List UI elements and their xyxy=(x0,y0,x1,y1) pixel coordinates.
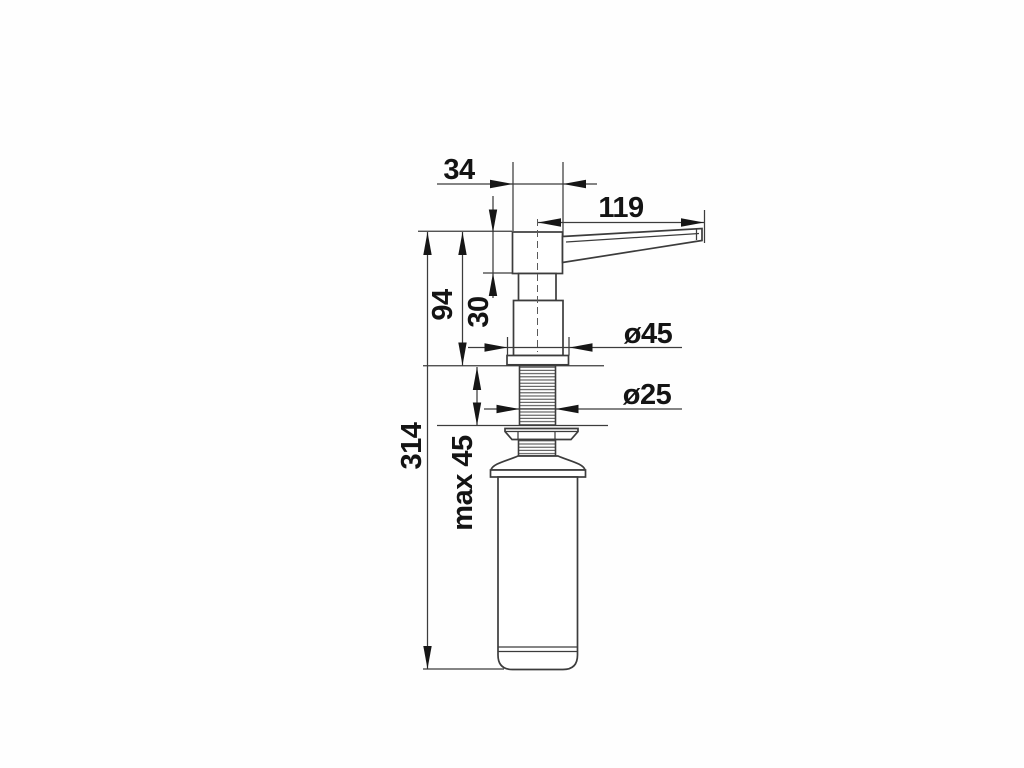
label-head-height: 30 xyxy=(463,296,495,327)
label-flange-diameter: ø45 xyxy=(624,318,673,350)
label-spout-reach: 119 xyxy=(598,192,644,224)
label-head-width: 34 xyxy=(443,154,475,186)
label-max-counter-thickness: max 45 xyxy=(447,435,479,531)
arrow-spout-left xyxy=(538,218,561,226)
label-total-height: 314 xyxy=(396,422,428,469)
locking-nut xyxy=(505,429,578,440)
arrow-head-width-right xyxy=(563,180,586,188)
arrow-max45-top xyxy=(473,367,481,390)
bottle-collar xyxy=(491,470,586,477)
arrow-total-top xyxy=(423,232,431,255)
arrow-max45-bottom xyxy=(473,403,481,426)
flange xyxy=(507,356,569,365)
arrow-30-bottom xyxy=(489,273,497,296)
arrow-94-bottom xyxy=(458,343,466,366)
label-height-above-counter: 94 xyxy=(427,289,459,321)
spout xyxy=(563,229,703,263)
label-thread-diameter: ø25 xyxy=(623,379,672,411)
arrow-94-top xyxy=(458,232,466,255)
arrow-thread-right xyxy=(556,405,579,413)
threaded-shaft xyxy=(520,366,556,426)
arrow-30-top xyxy=(489,210,497,233)
soap-dispenser-dimension-drawing: 34 119 94 30 ø45 ø25 max 45 314 xyxy=(0,0,1024,768)
dispenser-outline xyxy=(491,219,703,670)
arrow-head-width-left xyxy=(490,180,513,188)
arrow-spout-right xyxy=(681,218,704,226)
bottle-shoulder xyxy=(491,456,585,470)
bottle-body xyxy=(498,477,578,670)
arrow-thread-left xyxy=(497,405,520,413)
arrow-flange-right xyxy=(570,343,593,351)
technical-drawing-page: 34 119 94 30 ø45 ø25 max 45 314 xyxy=(0,0,1024,768)
arrow-flange-left xyxy=(485,343,508,351)
arrow-total-bottom xyxy=(423,646,431,669)
lower-thread xyxy=(519,440,556,457)
